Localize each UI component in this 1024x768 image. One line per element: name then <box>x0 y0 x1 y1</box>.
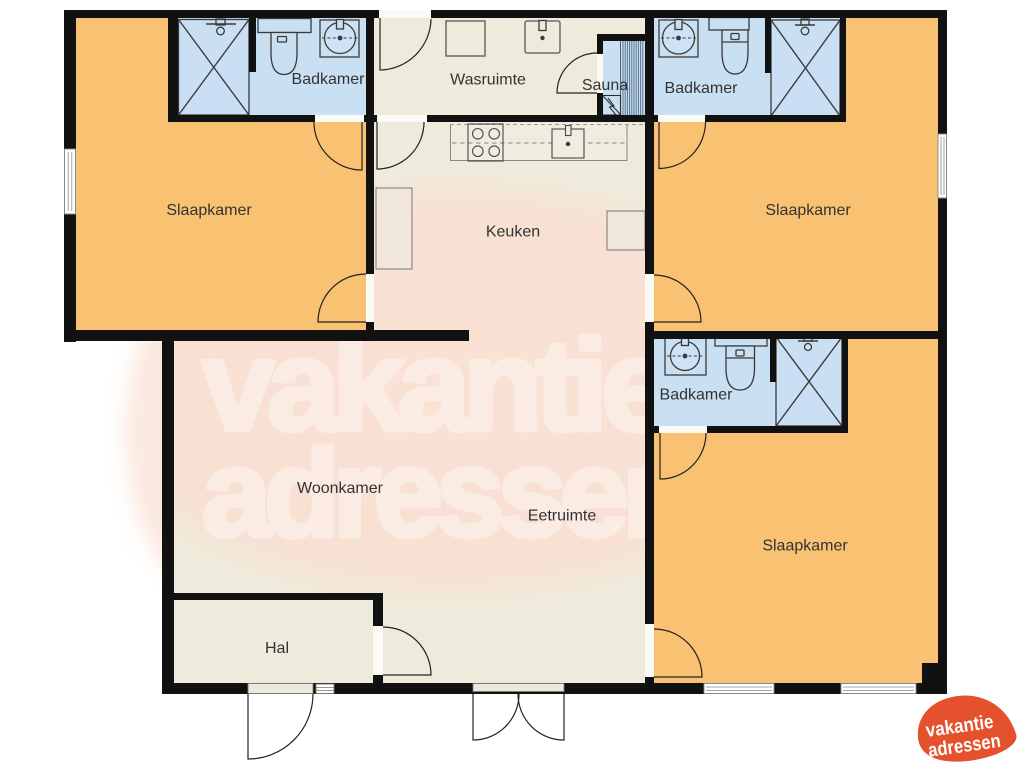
svg-text:Slaapkamer: Slaapkamer <box>765 202 851 219</box>
svg-text:Slaapkamer: Slaapkamer <box>166 202 252 219</box>
svg-text:Badkamer: Badkamer <box>292 71 366 88</box>
svg-text:Woonkamer: Woonkamer <box>297 480 384 497</box>
svg-text:Keuken: Keuken <box>486 224 540 241</box>
svg-text:Slaapkamer: Slaapkamer <box>762 538 848 555</box>
svg-text:Sauna: Sauna <box>582 77 628 94</box>
svg-text:Hal: Hal <box>265 640 289 657</box>
svg-text:Badkamer: Badkamer <box>660 387 734 404</box>
svg-text:Badkamer: Badkamer <box>665 80 739 97</box>
svg-text:Eetruimte: Eetruimte <box>528 508 597 525</box>
svg-text:adressen: adressen <box>202 425 691 563</box>
svg-text:Wasruimte: Wasruimte <box>450 72 526 89</box>
